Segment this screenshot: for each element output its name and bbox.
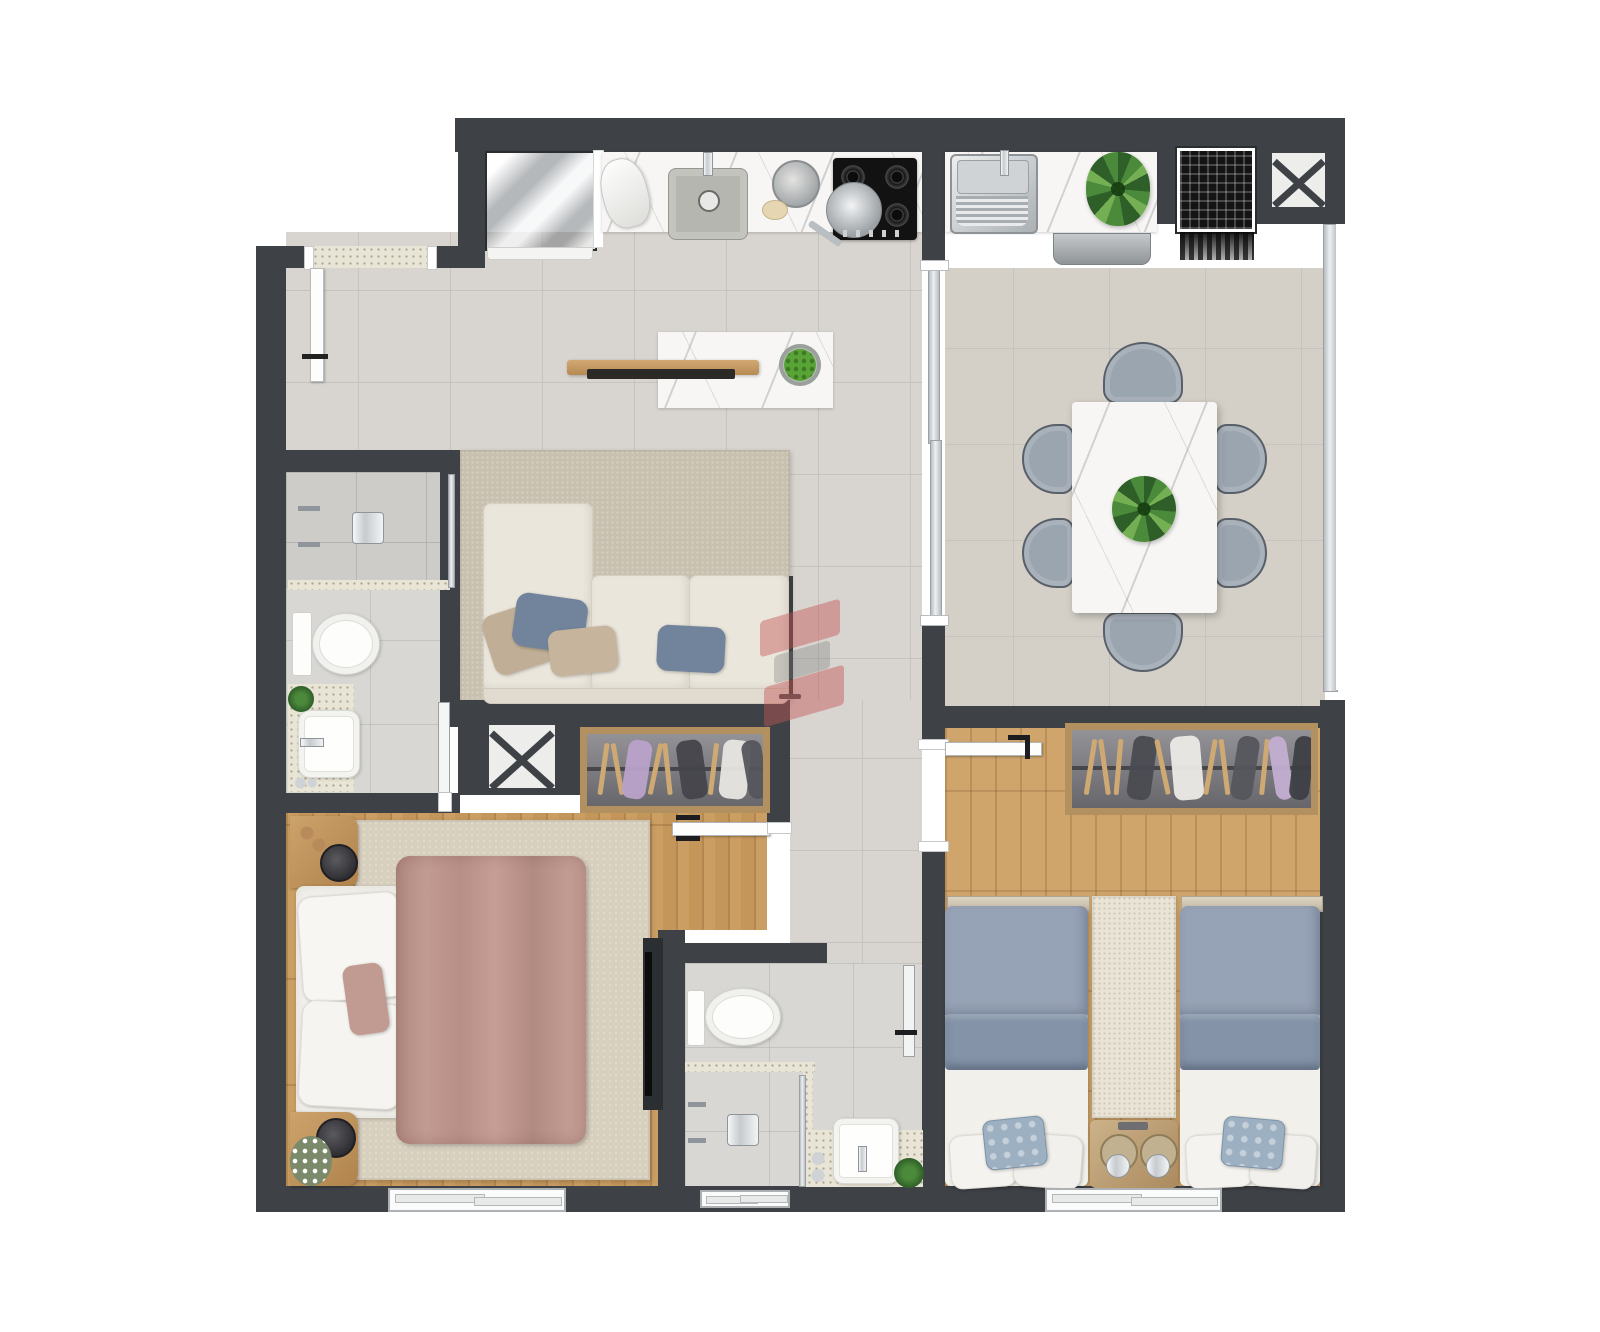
shower1-threshold [288, 580, 450, 590]
wall-bathroom1-bottom [256, 793, 460, 813]
shower1-glass-screen [448, 474, 455, 588]
vanity2-faucet [858, 1146, 867, 1172]
sofa-pillow-blue-2 [656, 624, 726, 673]
wall-left [256, 246, 286, 1212]
entry-door-handle [302, 354, 328, 359]
master-bedroom-window [388, 1188, 566, 1212]
wall-fridge-nook [458, 152, 485, 268]
hanging-garment [1126, 735, 1159, 802]
wall-east-lower [1320, 700, 1345, 1212]
bathroom1-door-leaf [438, 702, 450, 796]
serving-tray [587, 369, 735, 379]
shaft-x-hall [484, 720, 560, 793]
shower2-head [727, 1114, 759, 1146]
bathroom2-door-handle [895, 1030, 917, 1035]
twin-lamp-left-sphere [1106, 1154, 1130, 1178]
floor-hallway [790, 700, 922, 963]
entry-jamb-right [427, 246, 437, 270]
sofa-pillow-tan-2 [547, 625, 619, 678]
grate-soot-streaks [1180, 232, 1254, 260]
tv-screen [645, 952, 652, 1096]
laundry-washboard-ribs [956, 196, 1028, 226]
toilet2-bowl [705, 988, 781, 1046]
master-door-leaf [672, 822, 770, 836]
watermark-logo [758, 602, 844, 728]
twin-bed-left-duvet-fold [945, 1014, 1088, 1070]
dining-centerpiece-plant [1112, 476, 1176, 542]
master-wardrobe [580, 727, 770, 813]
burner-2 [884, 164, 910, 190]
sliding-glass-panel-1 [928, 268, 940, 444]
twin-left-accent-pillow [982, 1115, 1049, 1171]
twin-bedroom-window [1045, 1188, 1222, 1212]
sliding-glass-panel-2 [930, 440, 942, 620]
twin-bed-right-duvet-fold [1180, 1014, 1320, 1070]
hanging-garment [675, 738, 709, 800]
laundry-faucet [1000, 150, 1009, 176]
entry-threshold [312, 246, 427, 268]
twin-nightstand-drawer-pull [1118, 1122, 1148, 1130]
ac-vent-grate [1177, 148, 1255, 232]
cooktop-knobs [843, 230, 907, 237]
twin-bed-left-duvet [945, 906, 1088, 1018]
vanity2-bottles [810, 1150, 826, 1184]
master-door-handle-b [676, 836, 700, 841]
vanity1-plant [288, 686, 314, 712]
shower2-glass-screen [799, 1075, 806, 1187]
master-door-jamb [767, 822, 792, 834]
flower-vase-white [290, 1136, 332, 1186]
vanity2-plant [894, 1158, 924, 1188]
small-bowl [762, 200, 788, 220]
burner-3 [884, 202, 910, 228]
window-wall-outer-gap [1336, 224, 1345, 690]
refrigerator [485, 151, 597, 251]
kitchen-faucet [703, 152, 713, 176]
vanity1-faucet [300, 738, 324, 747]
entry-door-leaf [310, 268, 324, 382]
twin-wardrobe [1065, 723, 1318, 815]
laundry-plant [1086, 152, 1150, 226]
shower1-head [352, 512, 384, 544]
wall-twin-west-lower [922, 849, 945, 1190]
master-duvet [396, 856, 586, 1144]
toilet1-bowl [312, 613, 380, 675]
twin-lamp-right-sphere [1146, 1154, 1170, 1178]
wall-divider-bottom [922, 618, 945, 743]
twin-bed-right-duvet [1180, 906, 1320, 1018]
glass-track-cap-bottom [920, 615, 949, 626]
twin-door-jamb-bottom [918, 841, 949, 852]
washing-machine [1053, 233, 1151, 265]
nightstand-cups [298, 824, 328, 854]
shower1-valve-1 [298, 506, 320, 511]
wall-bathroom2-top [660, 943, 827, 963]
glass-track-cap-top [920, 260, 949, 271]
floor-plan-canvas [0, 0, 1600, 1332]
shower2-valve-1 [688, 1102, 706, 1107]
shower1-valve-2 [298, 542, 320, 547]
master-door-handle-a [676, 815, 700, 820]
sofa-front-band [483, 688, 789, 704]
wall-divider-top [922, 152, 945, 268]
twin-bedroom-runner-rug [1092, 896, 1176, 1118]
shower2-valve-2 [688, 1138, 706, 1143]
hanging-garment [1288, 735, 1316, 801]
toilet2-tank [687, 990, 705, 1046]
shaft-x-top-right [1267, 148, 1330, 212]
hanging-garment [1169, 735, 1204, 801]
entry-jamb-left [304, 246, 314, 270]
twin-door-handle-b [1025, 735, 1030, 759]
refrigerator-front-edge [487, 247, 593, 260]
hanging-garment [1229, 735, 1261, 802]
nightstand-tray [320, 844, 358, 882]
vanity1-bottles [294, 776, 320, 790]
bathroom2-window [700, 1190, 790, 1208]
wall-bathroom1-top [256, 450, 460, 472]
twin-right-accent-pillow [1220, 1115, 1286, 1170]
bathroom2-door-leaf [903, 965, 915, 1057]
shower2-threshold-h [685, 1062, 815, 1072]
fruit-bowl-apples [784, 349, 816, 381]
wall-top [455, 118, 1345, 152]
bathroom1-door-jamb [438, 792, 452, 812]
toilet1-tank [292, 612, 312, 676]
laundry-tub-basin [957, 160, 1029, 194]
kitchen-sink-drain-dial [698, 190, 720, 212]
